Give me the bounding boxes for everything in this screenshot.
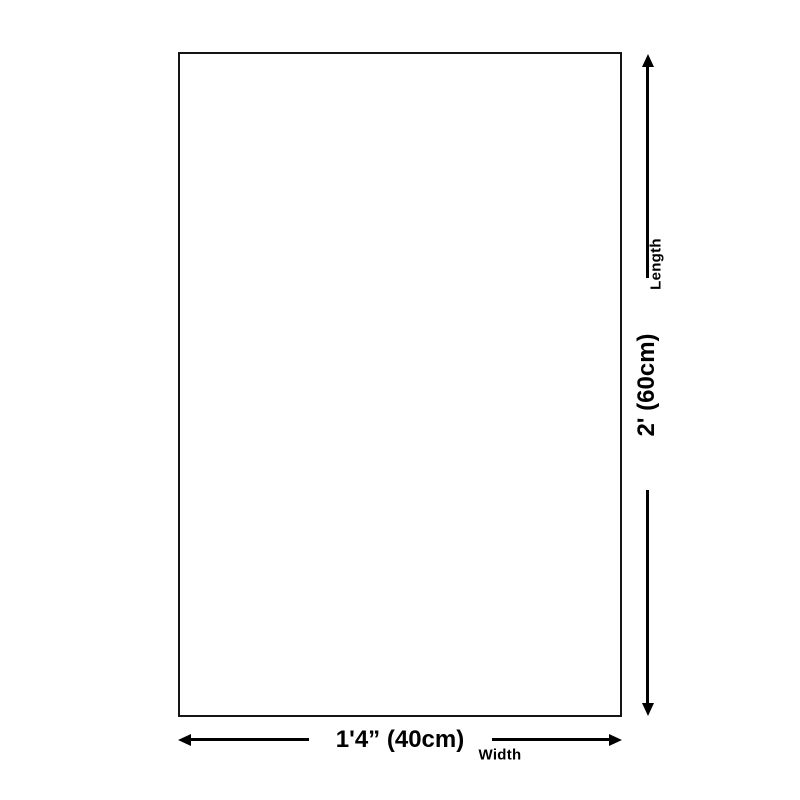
length-value: 2' (60cm) [635,333,659,436]
product-outline-rectangle [178,52,622,717]
width-arrow-left-segment [188,738,309,741]
arrow-down-icon [642,703,654,716]
length-arrow-bottom-segment [646,490,649,704]
width-arrow-right-segment [492,738,611,741]
width-label: Width [478,748,521,763]
length-label: Length [649,238,664,290]
arrow-right-icon [609,734,622,746]
dimension-diagram: Length 2' (60cm) 1'4” (40cm) Width [0,0,800,800]
width-value: 1'4” (40cm) [336,728,464,752]
